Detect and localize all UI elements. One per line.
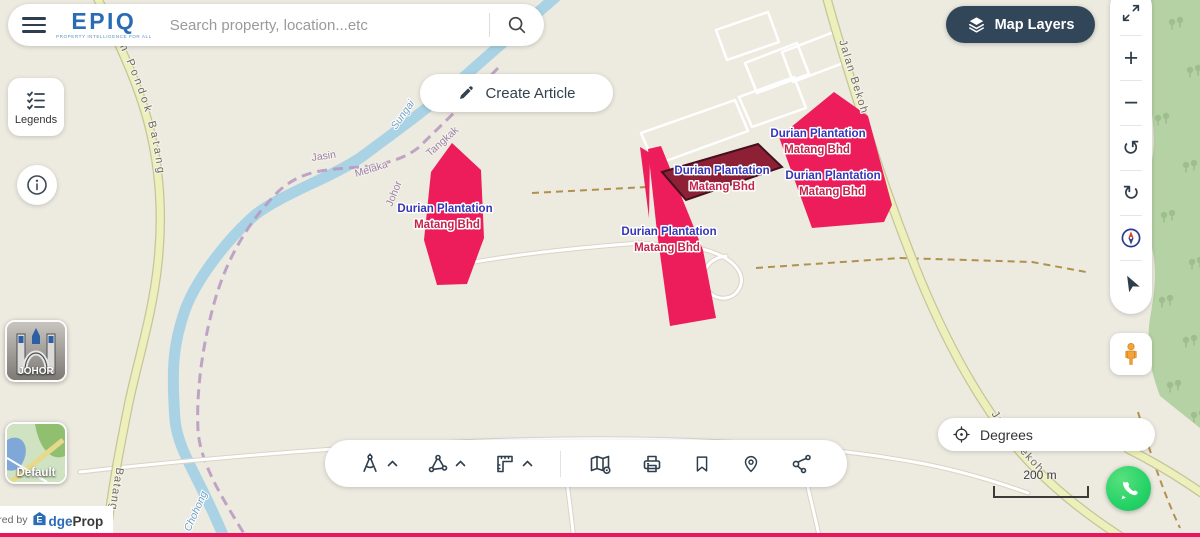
bookmark-icon	[691, 453, 713, 475]
whatsapp-button[interactable]	[1106, 466, 1151, 511]
rotate-ccw-icon: ↺	[1122, 138, 1140, 159]
folded-map-icon	[588, 452, 612, 476]
divider	[1120, 170, 1142, 171]
my-location-button[interactable]	[1110, 262, 1152, 304]
draw-tool-button[interactable]	[358, 452, 398, 476]
ruler-icon	[493, 452, 517, 476]
map-layers-label: Map Layers	[995, 17, 1075, 33]
app-window: Jalan Pondok Batang Batang Jalan Bekoh J…	[0, 0, 1200, 537]
plus-icon: +	[1124, 46, 1139, 71]
divider	[1120, 260, 1142, 261]
svg-text:E: E	[37, 514, 43, 524]
menu-button[interactable]	[22, 17, 46, 33]
rotate-left-button[interactable]: ↺	[1110, 127, 1152, 169]
layers-icon	[967, 15, 986, 34]
drafting-compass-icon	[358, 452, 382, 476]
logo-tagline: PROPERTY INTELLIGENCE FOR ALL	[56, 35, 152, 40]
location-pin-button[interactable]	[740, 453, 762, 475]
divider	[1120, 215, 1142, 216]
map-style-tile-label: Default	[7, 467, 65, 479]
bottom-accent-strip	[0, 533, 1200, 537]
search-bar: EPIQ PROPERTY INTELLIGENCE FOR ALL	[8, 4, 544, 46]
info-icon	[25, 173, 49, 197]
powered-by-badge[interactable]: Powered by E dge Prop	[0, 506, 113, 534]
streetview-pegman-button[interactable]	[1110, 333, 1152, 375]
whatsapp-icon	[1116, 476, 1142, 502]
print-button[interactable]	[640, 452, 664, 476]
expand-icon	[1120, 2, 1142, 24]
map-view-button[interactable]	[588, 452, 612, 476]
rotate-cw-icon: ↻	[1122, 183, 1140, 204]
divider	[1120, 80, 1142, 81]
compass-icon	[1119, 226, 1143, 250]
chevron-up-icon	[522, 460, 533, 467]
svg-text:Durian Plantation: Durian Plantation	[674, 165, 769, 177]
edgeprop-logo: E dge Prop	[32, 511, 103, 529]
printer-icon	[640, 452, 664, 476]
polygon-nodes-icon	[426, 452, 450, 476]
route-icon	[790, 452, 814, 476]
divider	[1120, 125, 1142, 126]
navigation-arrow-icon	[1120, 272, 1142, 294]
divider	[1120, 35, 1142, 36]
brand-text: dge	[48, 514, 72, 529]
compass-button[interactable]	[1110, 217, 1152, 259]
search-button[interactable]	[500, 14, 534, 36]
checklist-icon	[25, 89, 47, 111]
chevron-up-icon	[387, 460, 398, 467]
search-input[interactable]	[168, 16, 479, 35]
epiq-logo[interactable]: EPIQ PROPERTY INTELLIGENCE FOR ALL	[56, 10, 152, 40]
region-tile-johor[interactable]: JOHOR	[5, 320, 67, 382]
info-button[interactable]	[17, 165, 57, 205]
map-style-tile-default[interactable]: Default	[5, 422, 67, 484]
create-article-label: Create Article	[485, 85, 575, 102]
brand-text: Prop	[72, 514, 103, 529]
logo-text: EPIQ	[71, 10, 136, 33]
zoom-in-button[interactable]: +	[1110, 37, 1152, 79]
polygon-tool-button[interactable]	[426, 452, 466, 476]
svg-text:Durian Plantation: Durian Plantation	[397, 203, 492, 215]
svg-text:Matang Bhd: Matang Bhd	[689, 181, 755, 193]
powered-by-text: Powered by	[0, 514, 27, 526]
degrees-button[interactable]: Degrees	[938, 418, 1155, 451]
pegman-icon	[1119, 342, 1143, 366]
svg-text:Matang Bhd: Matang Bhd	[784, 144, 850, 156]
pencil-icon	[457, 84, 475, 102]
measure-tool-button[interactable]	[493, 452, 533, 476]
target-icon	[952, 425, 971, 444]
route-button[interactable]	[790, 452, 814, 476]
degrees-label: Degrees	[980, 427, 1033, 443]
create-article-button[interactable]: Create Article	[420, 74, 613, 112]
svg-text:Matang Bhd: Matang Bhd	[634, 242, 700, 254]
search-icon	[506, 14, 528, 36]
scale-label: 200 m	[1008, 468, 1072, 482]
minus-icon: −	[1124, 91, 1139, 116]
divider	[560, 451, 561, 477]
legends-label: Legends	[15, 114, 57, 126]
svg-text:Durian Plantation: Durian Plantation	[621, 226, 716, 238]
map-controls-panel: + − ↺ ↻	[1110, 0, 1152, 314]
svg-text:Matang Bhd: Matang Bhd	[799, 186, 865, 198]
divider	[489, 13, 490, 37]
bookmark-button[interactable]	[691, 453, 713, 475]
fullscreen-button[interactable]	[1110, 0, 1152, 34]
svg-text:Durian Plantation: Durian Plantation	[770, 128, 865, 140]
edgeprop-house-icon: E	[32, 511, 47, 526]
legends-button[interactable]: Legends	[8, 78, 64, 136]
scale-bar	[993, 486, 1089, 498]
svg-text:Durian Plantation: Durian Plantation	[785, 170, 880, 182]
rotate-right-button[interactable]: ↻	[1110, 172, 1152, 214]
map-layers-button[interactable]: Map Layers	[946, 6, 1095, 43]
map-tools-toolbar	[325, 440, 847, 487]
svg-text:Matang Bhd: Matang Bhd	[414, 219, 480, 231]
region-tile-label: JOHOR	[7, 366, 65, 377]
location-pin-icon	[740, 453, 762, 475]
zoom-out-button[interactable]: −	[1110, 82, 1152, 124]
chevron-up-icon	[455, 460, 466, 467]
